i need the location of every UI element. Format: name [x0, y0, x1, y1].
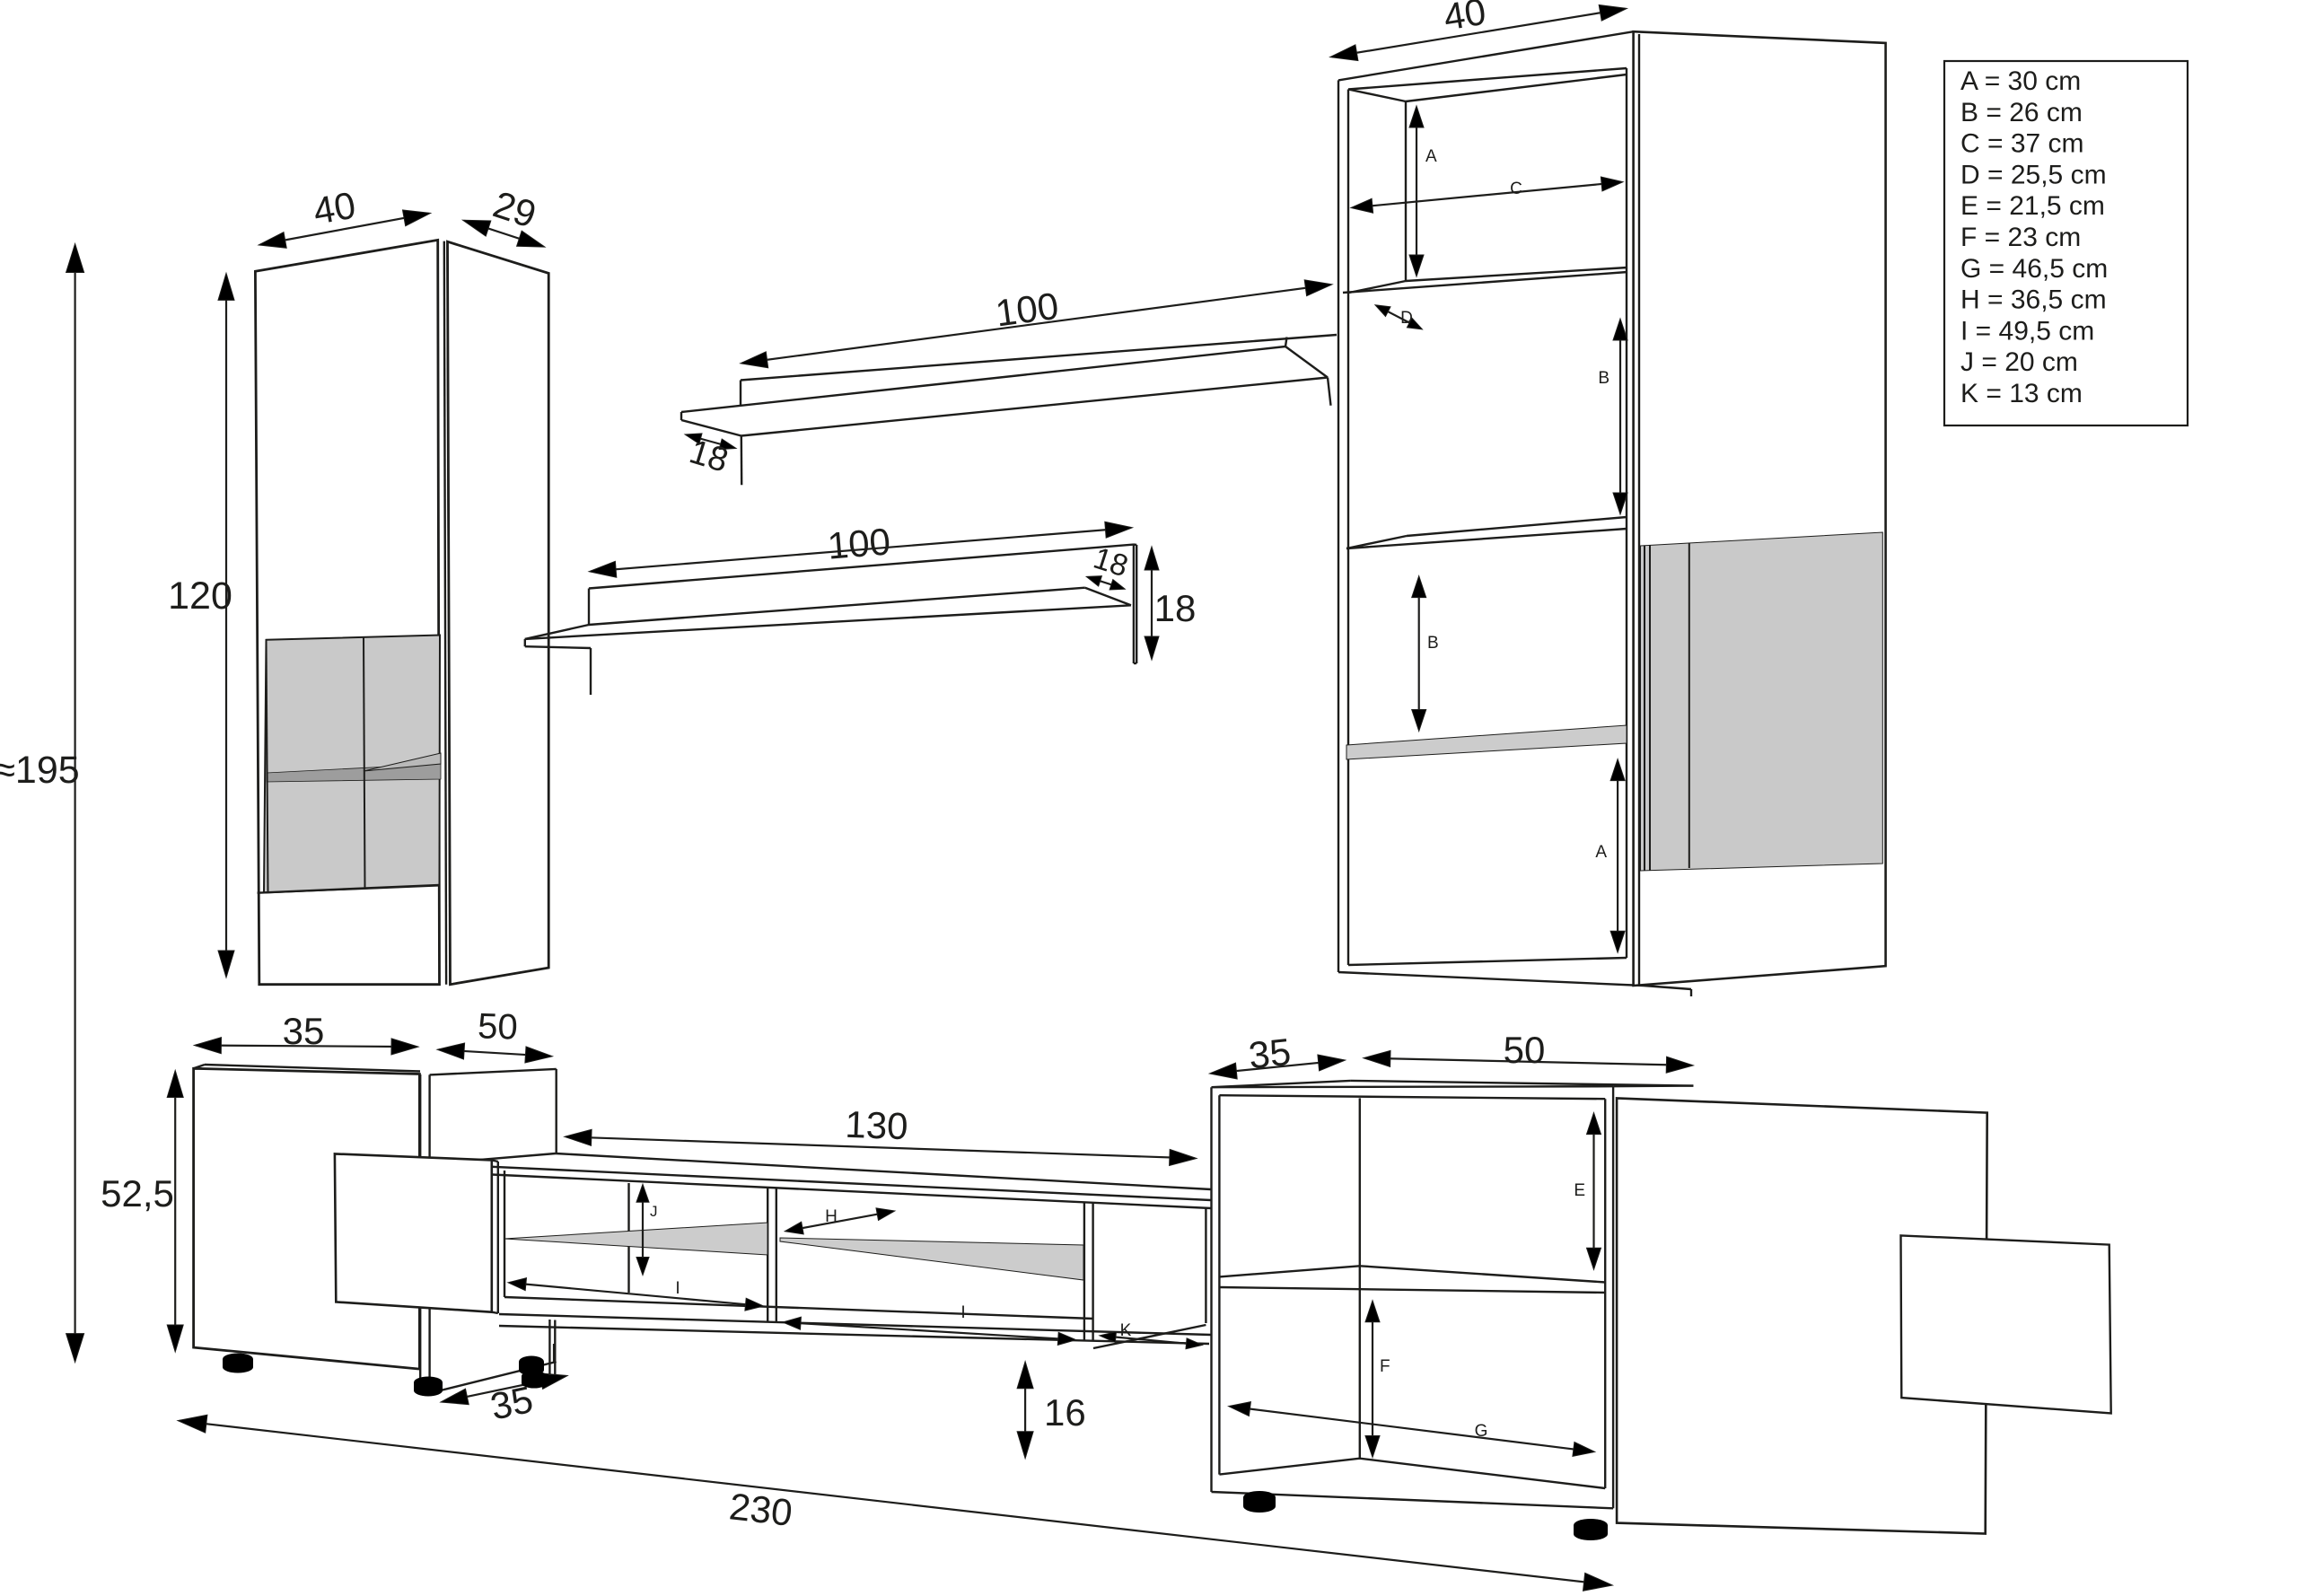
- svg-text:D = 25,5 cm: D = 25,5 cm: [1960, 160, 2107, 189]
- svg-text:K = 13 cm: K = 13 cm: [1960, 379, 2083, 408]
- svg-text:35: 35: [1247, 1030, 1293, 1077]
- svg-text:K: K: [1120, 1321, 1132, 1340]
- svg-text:18: 18: [1154, 587, 1197, 629]
- svg-text:≈195: ≈195: [0, 749, 80, 792]
- svg-text:A: A: [1425, 147, 1437, 166]
- svg-text:I: I: [675, 1279, 680, 1298]
- svg-text:B: B: [1598, 369, 1609, 388]
- svg-text:230: 230: [727, 1485, 794, 1534]
- svg-text:120: 120: [168, 574, 232, 618]
- svg-text:B = 26 cm: B = 26 cm: [1960, 98, 2083, 127]
- svg-text:40: 40: [1441, 0, 1489, 39]
- svg-text:H = 36,5 cm: H = 36,5 cm: [1960, 285, 2107, 315]
- svg-text:A = 30 cm: A = 30 cm: [1960, 66, 2081, 96]
- svg-text:130: 130: [845, 1103, 909, 1147]
- svg-text:50: 50: [477, 1006, 518, 1048]
- svg-text:F: F: [1380, 1357, 1390, 1376]
- svg-text:A: A: [1595, 843, 1607, 862]
- svg-text:E = 21,5 cm: E = 21,5 cm: [1960, 191, 2105, 221]
- svg-text:B: B: [1427, 634, 1439, 653]
- svg-text:I = 49,5 cm: I = 49,5 cm: [1960, 316, 2094, 346]
- svg-text:G = 46,5 cm: G = 46,5 cm: [1960, 254, 2108, 284]
- svg-text:100: 100: [826, 520, 892, 566]
- svg-text:D: D: [1400, 309, 1413, 328]
- svg-text:F = 23 cm: F = 23 cm: [1960, 223, 2081, 252]
- svg-text:J = 20 cm: J = 20 cm: [1960, 347, 2078, 377]
- svg-text:52,5: 52,5: [101, 1172, 174, 1215]
- svg-text:J: J: [650, 1203, 658, 1220]
- svg-text:50: 50: [1504, 1029, 1546, 1071]
- svg-text:C: C: [1510, 180, 1522, 198]
- svg-text:40: 40: [310, 184, 358, 232]
- svg-text:C = 37 cm: C = 37 cm: [1960, 129, 2084, 159]
- svg-text:35: 35: [283, 1010, 325, 1052]
- svg-text:G: G: [1475, 1422, 1488, 1441]
- svg-text:E: E: [1574, 1181, 1585, 1200]
- svg-text:100: 100: [993, 285, 1061, 335]
- svg-text:H: H: [825, 1207, 838, 1226]
- svg-text:16: 16: [1044, 1391, 1086, 1434]
- svg-text:I: I: [960, 1303, 965, 1322]
